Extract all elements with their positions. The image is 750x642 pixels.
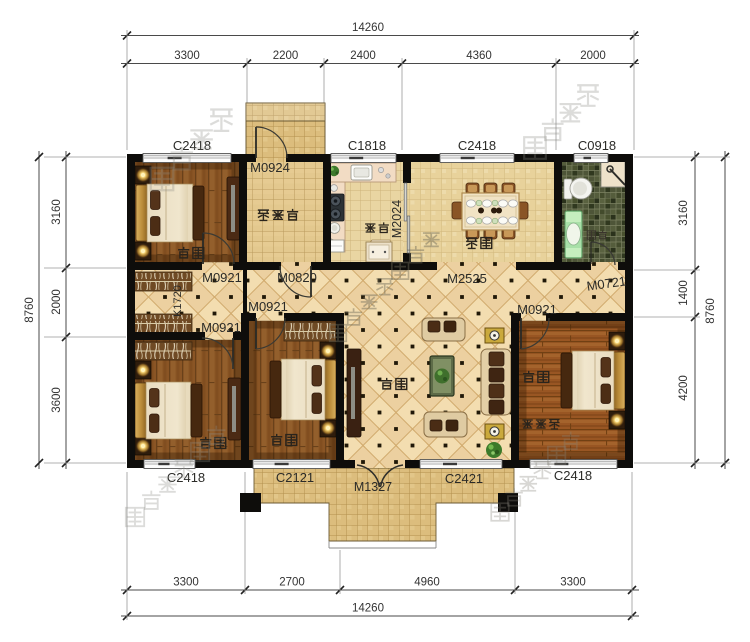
svg-text:M0924: M0924: [250, 160, 290, 175]
svg-text:M0921: M0921: [201, 320, 241, 335]
svg-text:M2024: M2024: [390, 200, 404, 238]
svg-text:2400: 2400: [350, 50, 376, 62]
svg-text:8760: 8760: [24, 297, 36, 323]
svg-text:3300: 3300: [173, 577, 199, 589]
svg-text:1400: 1400: [678, 280, 690, 306]
svg-text:K1720: K1720: [172, 285, 184, 317]
svg-text:4360: 4360: [466, 50, 492, 62]
svg-text:2000: 2000: [580, 50, 606, 62]
svg-text:M1327: M1327: [354, 480, 392, 494]
svg-text:2700: 2700: [279, 577, 305, 589]
svg-text:8760: 8760: [705, 298, 717, 324]
svg-text:4960: 4960: [414, 577, 440, 589]
svg-text:3300: 3300: [174, 50, 200, 62]
svg-text:M0921: M0921: [517, 302, 557, 317]
svg-text:C0918: C0918: [578, 138, 616, 153]
svg-text:C1818: C1818: [348, 138, 386, 153]
svg-text:2200: 2200: [273, 50, 299, 62]
svg-text:14260: 14260: [352, 22, 384, 34]
svg-text:3160: 3160: [678, 200, 690, 226]
svg-text:C2418: C2418: [554, 468, 592, 483]
svg-text:M0921: M0921: [248, 299, 288, 314]
svg-text:4200: 4200: [678, 375, 690, 401]
svg-text:3300: 3300: [560, 577, 586, 589]
svg-text:M0820: M0820: [277, 270, 317, 285]
svg-text:3600: 3600: [51, 387, 63, 413]
svg-text:3160: 3160: [51, 199, 63, 225]
svg-text:M0921: M0921: [202, 270, 242, 285]
svg-text:C2121: C2121: [276, 470, 314, 485]
svg-text:C2418: C2418: [458, 138, 496, 153]
svg-text:M2525: M2525: [447, 271, 487, 286]
svg-text:14260: 14260: [352, 603, 384, 615]
svg-text:C2421: C2421: [445, 471, 483, 486]
svg-text:2000: 2000: [51, 289, 63, 315]
